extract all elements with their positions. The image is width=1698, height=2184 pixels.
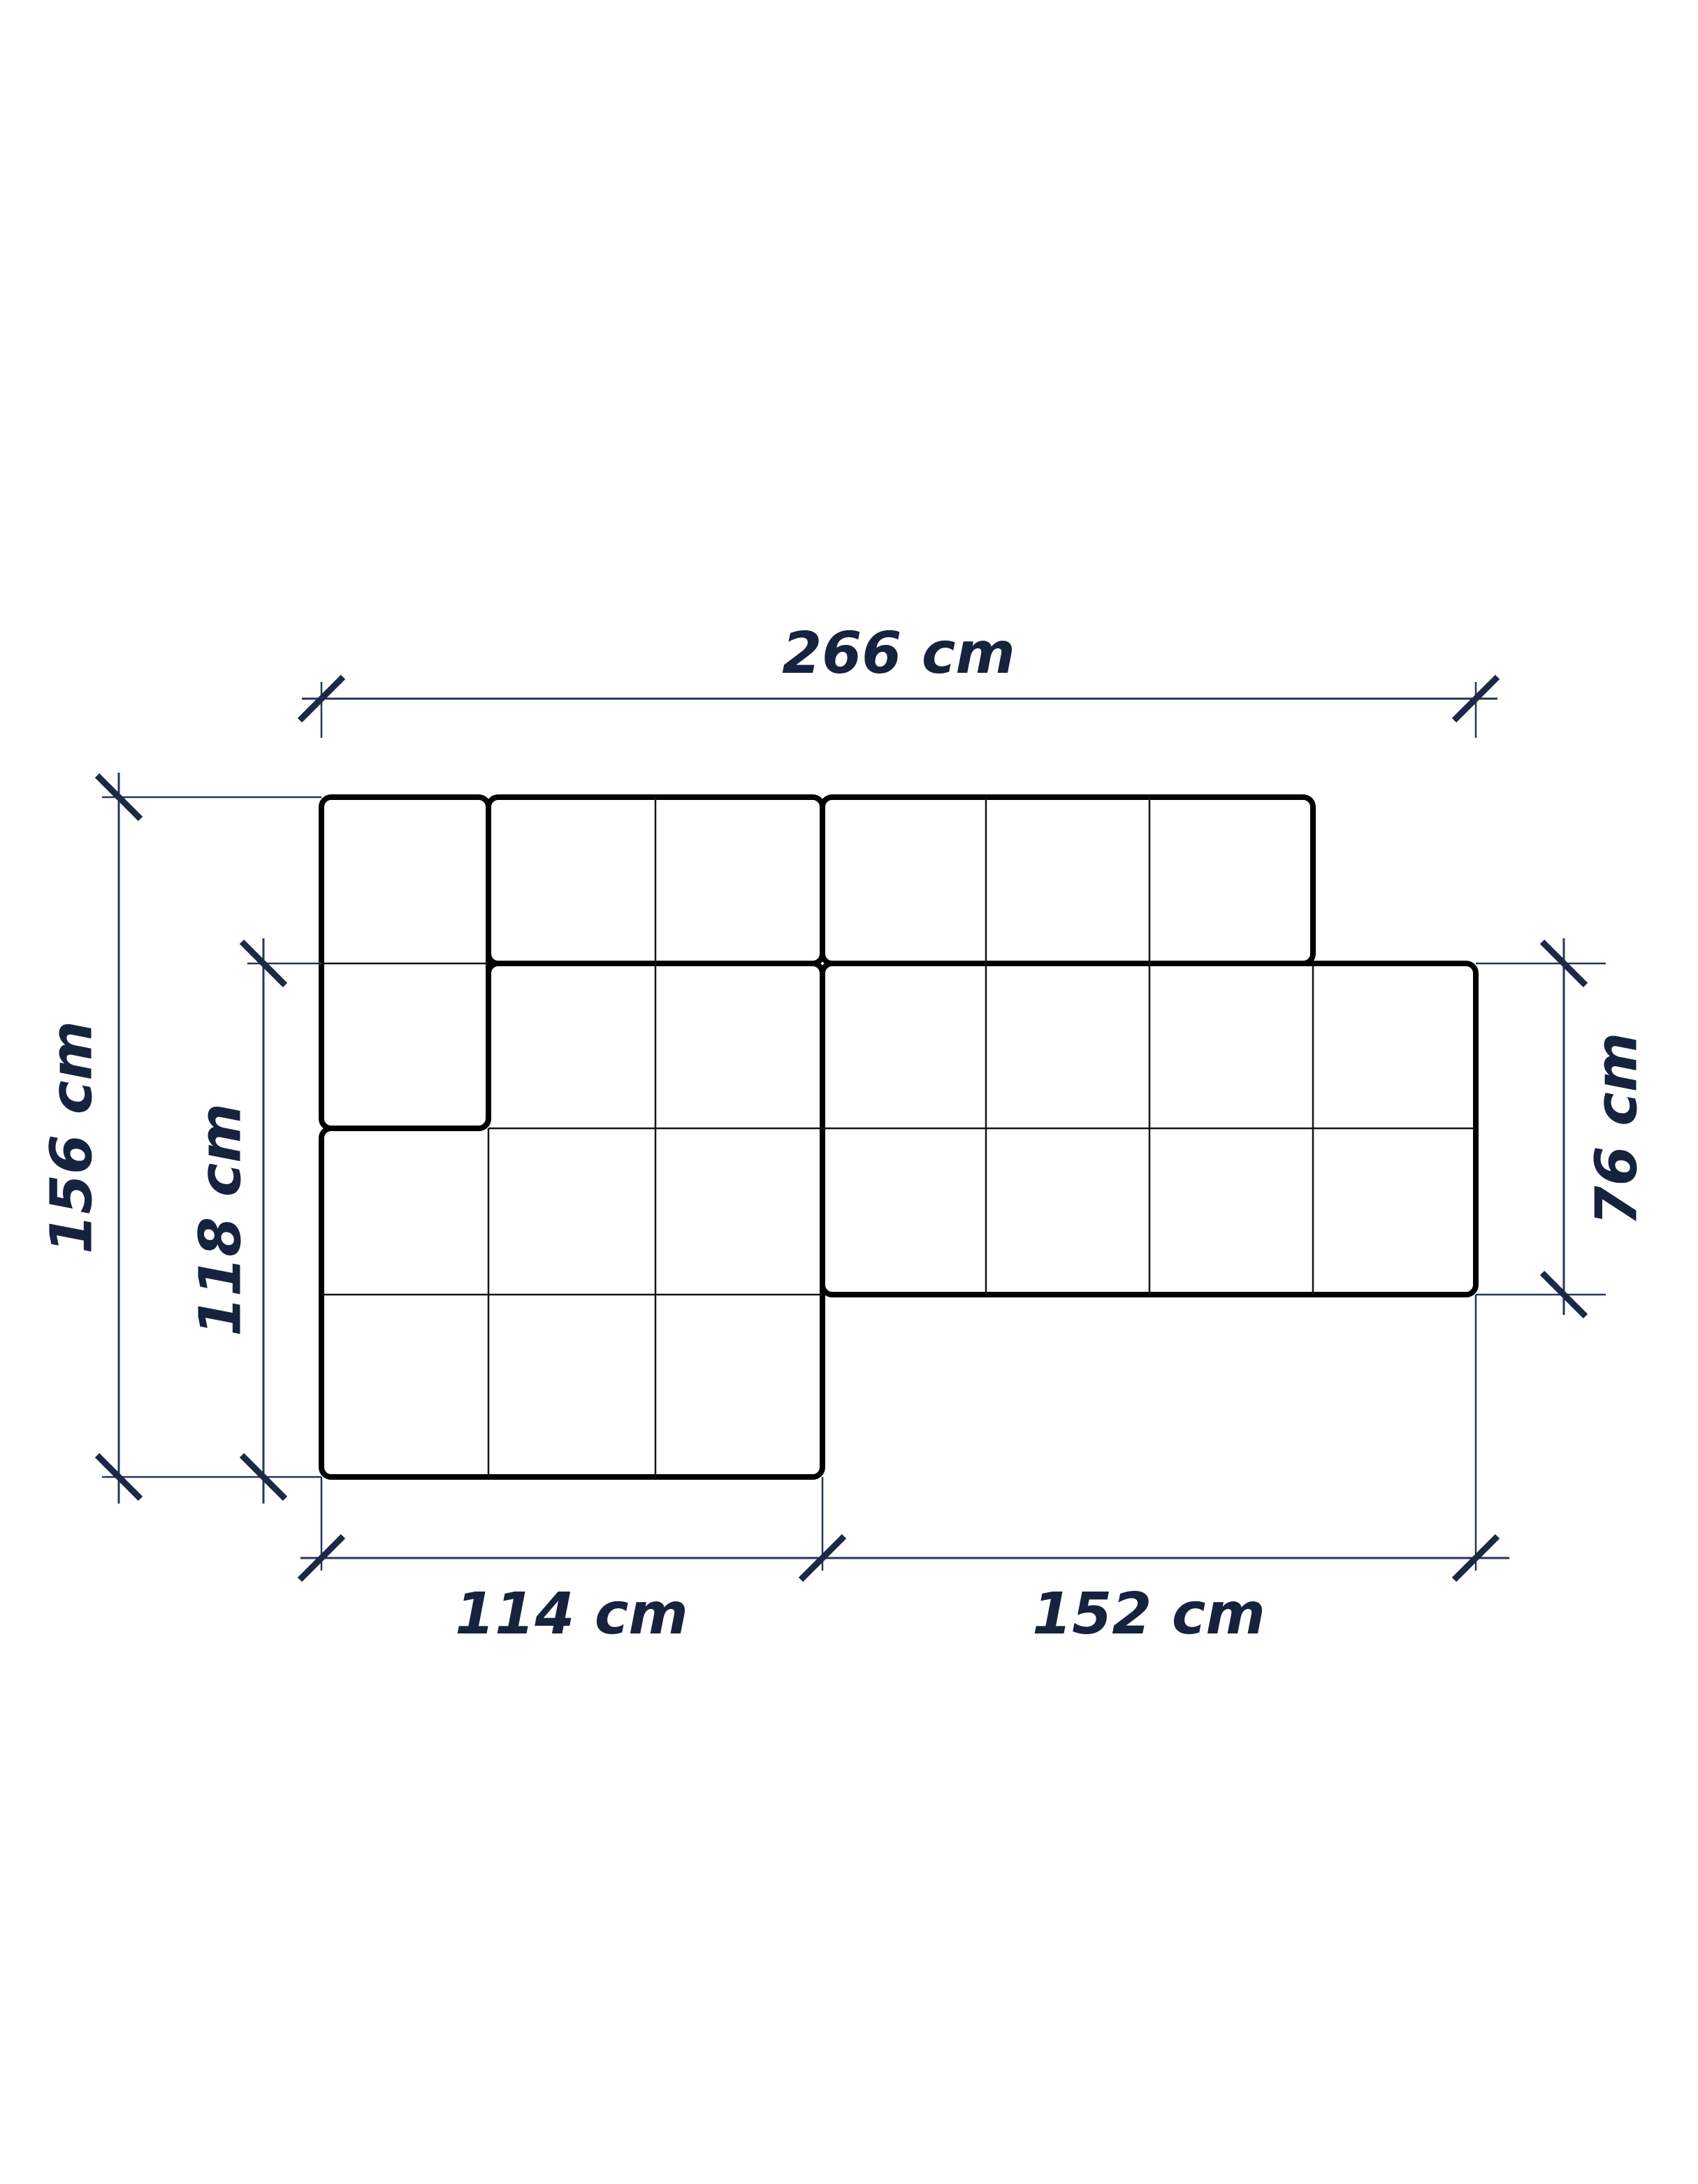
dimension-top: 266 cm [300,620,1497,738]
dim-label-bottom-left: 114 cm [455,1581,688,1647]
sofa-floor-plan-diagram: 266 cm 156 cm 118 cm 76 cm [0,0,1698,2184]
dim-label-right: 76 cm [1584,1033,1650,1226]
drawing-canvas: 266 cm 156 cm 118 cm 76 cm [0,0,1698,2184]
dimension-left: 156 cm [39,773,322,1504]
dim-label-left-inner: 118 cm [188,1103,254,1337]
seat-grid-lines [321,797,1476,1477]
dim-label-bottom-right: 152 cm [1032,1581,1265,1647]
dim-label-top: 266 cm [782,620,1015,687]
module-back-seat-right [822,797,1313,963]
dimension-bottom: 114 cm 152 cm [300,1295,1509,1647]
dimension-right: 76 cm [1476,938,1650,1316]
dim-label-left: 156 cm [39,1021,106,1254]
sofa-modules [321,797,1476,1477]
module-chaise-left [321,963,822,1477]
dimension-left-inner: 118 cm [188,938,322,1504]
